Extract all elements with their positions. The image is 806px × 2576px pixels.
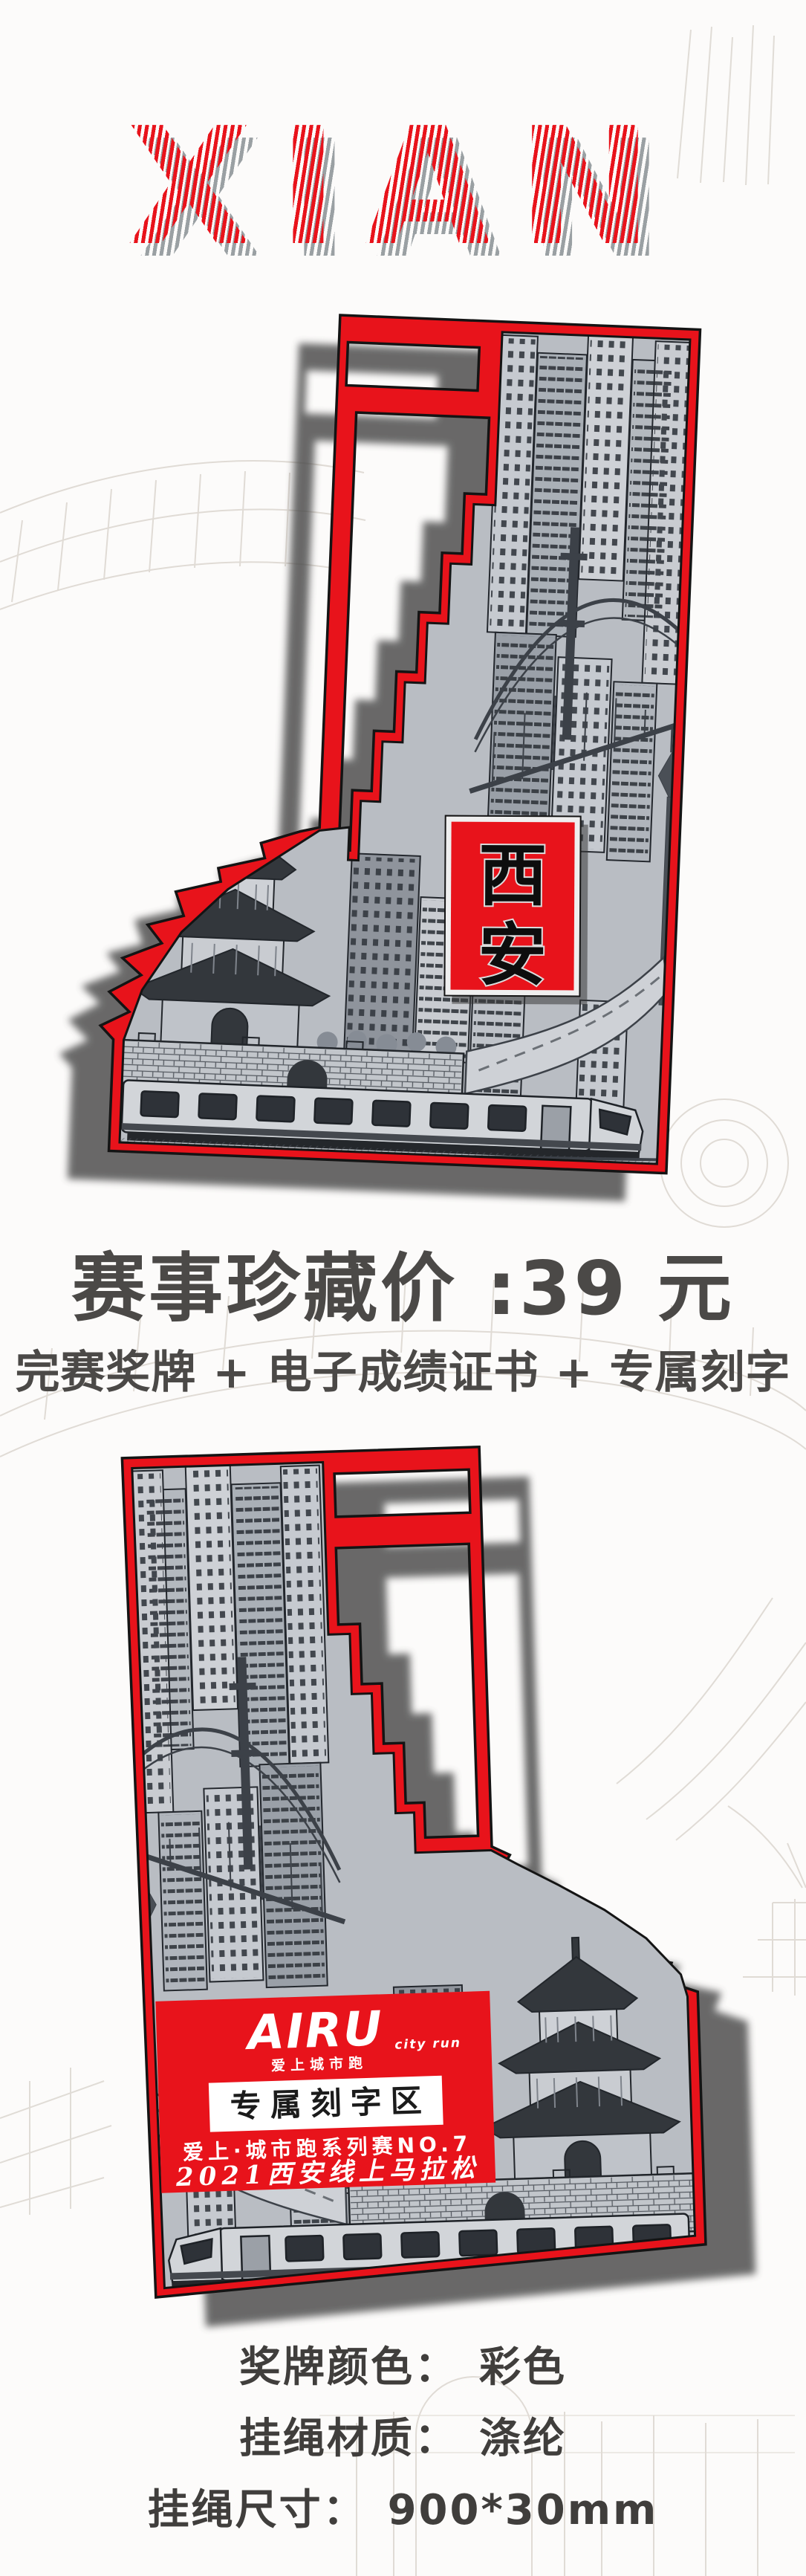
page-title: XIAN XIAN bbox=[0, 95, 806, 281]
badge-char-bottom: 安 bbox=[478, 915, 547, 995]
medal-back-image: AIRU city run 爱上城市跑 专属刻字区 爱上·城市跑系列赛NO.7 … bbox=[91, 1433, 774, 2362]
badge-char-top: 西 bbox=[478, 835, 547, 916]
bundle-text: 完赛奖牌 + 电子成绩证书 + 专属刻字 bbox=[0, 1336, 806, 1401]
medal-front-image: 西 安 bbox=[78, 302, 761, 1231]
spec-row-color: 奖牌颜色：彩色 bbox=[0, 2334, 806, 2405]
spec-label: 挂绳材质： bbox=[239, 2415, 458, 2463]
brand-logo-tagline: city run bbox=[394, 2036, 461, 2053]
city-name-badge: 西 安 bbox=[444, 816, 588, 1005]
brand-logo-chinese: 爱上城市跑 bbox=[271, 2054, 368, 2074]
poster-page: XIAN XIAN 西 安 赛 bbox=[0, 0, 806, 2576]
page-title-text: XIAN bbox=[0, 95, 806, 281]
spec-label: 挂绳尺寸： bbox=[148, 2486, 367, 2534]
spec-row-lanyard-material: 挂绳材质：涤纶 bbox=[0, 2405, 806, 2476]
engrave-area-label: 专属刻字区 bbox=[230, 2082, 431, 2124]
price-text: 赛事珍藏价 :39 元 bbox=[0, 1228, 806, 1336]
engraving-panel: AIRU city run 爱上城市跑 专属刻字区 爱上·城市跑系列赛NO.7 … bbox=[155, 1991, 495, 2193]
spec-row-lanyard-size: 挂绳尺寸：900*30mm bbox=[0, 2476, 806, 2548]
spec-value: 900*30mm bbox=[388, 2486, 659, 2534]
spec-label: 奖牌颜色： bbox=[239, 2343, 458, 2392]
spec-list: 奖牌颜色：彩色 挂绳材质：涤纶 挂绳尺寸：900*30mm bbox=[0, 2334, 806, 2548]
spec-value: 彩色 bbox=[479, 2343, 567, 2392]
spec-value: 涤纶 bbox=[479, 2415, 567, 2463]
brand-logo-text: AIRU bbox=[243, 2001, 384, 2061]
